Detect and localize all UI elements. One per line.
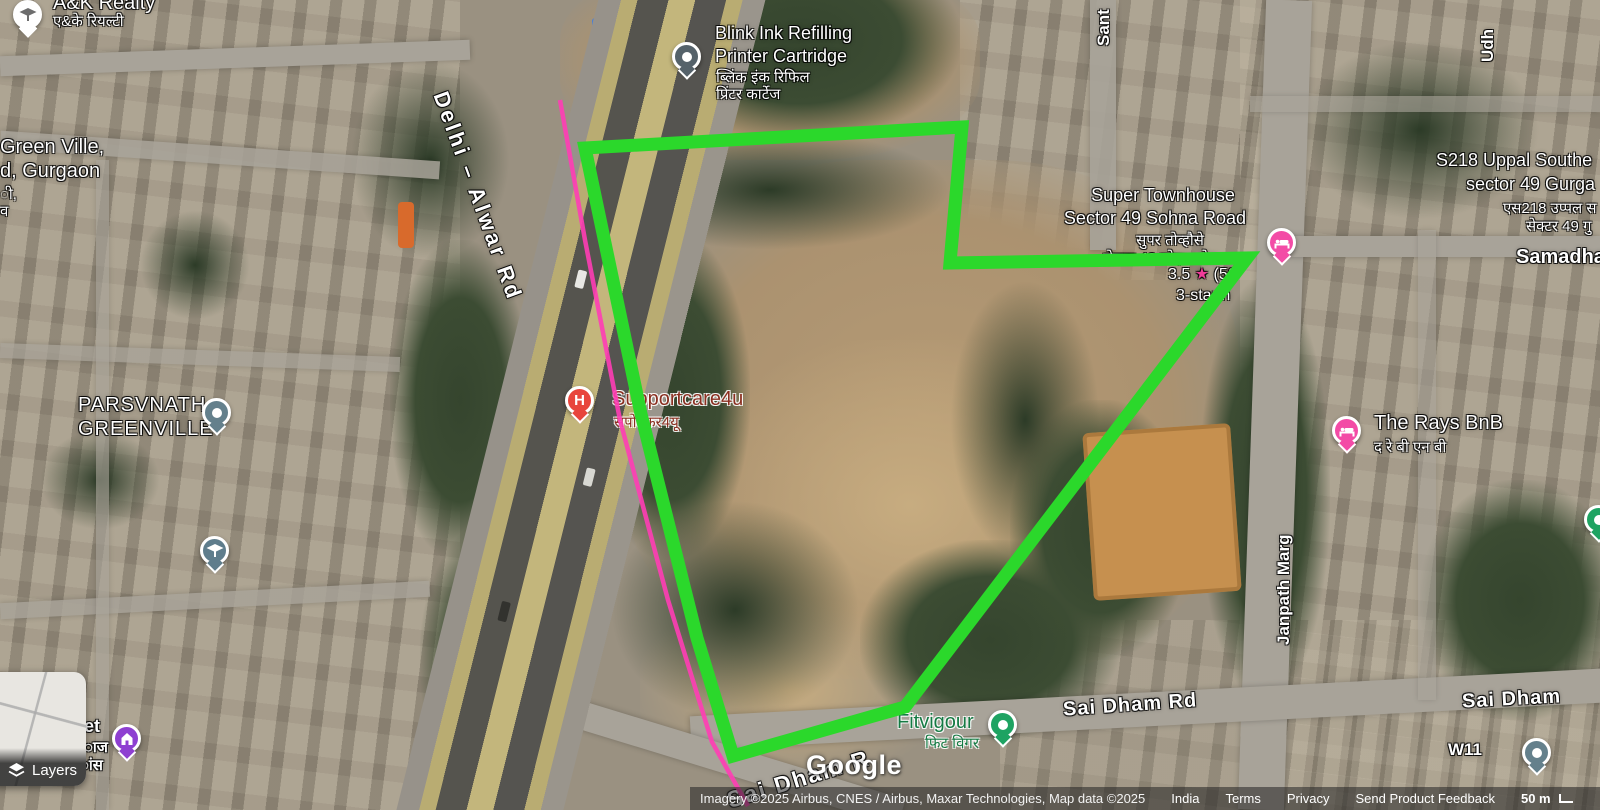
terrain-patch: [610, 500, 860, 720]
hospital-h-glyph: H: [574, 392, 585, 409]
super-townhouse-lodging-pin[interactable]: [1267, 228, 1296, 257]
poi-label-green-ville-frag2: व: [0, 201, 8, 221]
vehicle: [497, 601, 511, 623]
rating-reviews: (56: [1214, 266, 1237, 283]
poi-label-parsvnath-2[interactable]: GREENVILLE: [78, 418, 214, 441]
poi-label-green-ville[interactable]: Green Ville,: [0, 136, 104, 159]
poi-label-uppal-hindi[interactable]: एस218 उप्पल स: [1503, 198, 1596, 218]
poi-label-uppal-hindi2[interactable]: सेक्टर 49 गु: [1526, 216, 1591, 236]
pin-dot: [998, 720, 1008, 730]
poi-label-blink-ink-hindi2[interactable]: प्रिंटर कार्टेज: [716, 84, 780, 104]
street: [1250, 96, 1600, 112]
supportcare-hospital-pin[interactable]: H: [565, 386, 594, 415]
road-label-w11: W11: [1448, 740, 1482, 760]
google-logo[interactable]: Google: [806, 750, 902, 781]
blink-ink-pin[interactable]: [672, 42, 701, 71]
rating-value: 3.5: [1168, 266, 1190, 283]
poi-rating-super-townhouse[interactable]: 3.5 ★ (56: [1168, 264, 1237, 284]
road-label-udh: Udh: [1478, 29, 1498, 62]
poi-label-fitvigour[interactable]: Fitvigour: [897, 711, 974, 734]
poi-label-parsvnath[interactable]: PARSVNATH: [78, 394, 206, 417]
poi-label-uppal[interactable]: S218 Uppal Southe: [1436, 150, 1592, 171]
graduation-cap-icon: [19, 8, 36, 22]
layers-label: Layers: [32, 762, 77, 779]
pin-dot: [1532, 748, 1542, 758]
footer-feedback-link[interactable]: Send Product Feedback: [1355, 791, 1494, 806]
rays-bnb-lodging-pin[interactable]: [1332, 416, 1361, 445]
street: [96, 160, 109, 810]
road-label-janpath-marg: Janpath Marg: [1274, 534, 1294, 645]
pin-dot: [212, 408, 222, 418]
street: [1418, 230, 1436, 700]
w11-pin[interactable]: [1522, 738, 1551, 767]
poi-label-supportcare-hindi[interactable]: सपोर्टकर4यू: [614, 412, 679, 432]
poi-label-blink-ink[interactable]: Blink Ink Refilling: [715, 23, 852, 44]
poi-label-green-ville-2[interactable]: d, Gurgaon: [0, 160, 100, 183]
map-canvas[interactable]: A&K Realty ए&के रियल्टी Green Ville, d, …: [0, 0, 1600, 810]
rating-star-icon: ★: [1195, 266, 1209, 283]
poi-label-banquet-frag2[interactable]: ाज: [84, 737, 108, 757]
poi-label-uppal-2[interactable]: sector 49 Gurga: [1466, 174, 1595, 195]
fitvigour-pin[interactable]: [988, 710, 1017, 739]
vehicle: [583, 467, 596, 487]
map-footer-bar: Imagery ©2025 Airbus, CNES / Airbus, Max…: [690, 787, 1600, 810]
ak-realty-school-pin[interactable]: [13, 0, 42, 29]
pin-dot: [682, 52, 692, 62]
graduation-cap-icon: [206, 544, 223, 558]
imagery-attribution: Imagery ©2025 Airbus, CNES / Airbus, Max…: [700, 791, 1145, 806]
bed-icon: [1274, 237, 1289, 248]
footer-region: India: [1171, 791, 1199, 806]
layers-icon: [8, 762, 25, 779]
terrain-patch: [140, 210, 250, 320]
scale-label[interactable]: 50 m: [1521, 791, 1551, 806]
scale-bar: [1559, 794, 1573, 803]
poi-label-supportcare[interactable]: Supportcare4u: [612, 388, 743, 411]
vehicle: [574, 269, 587, 289]
poi-label-super-townhouse-hindi[interactable]: सुपर तोव्हौसे: [1080, 230, 1260, 250]
road-label-sant: Sant: [1094, 9, 1114, 46]
poi-label-super-townhouse[interactable]: Super Townhouse: [1058, 185, 1268, 206]
pin-dot: [1594, 515, 1600, 525]
orange-roof: [398, 202, 414, 248]
footer-privacy-link[interactable]: Privacy: [1287, 791, 1330, 806]
bed-icon: [1339, 425, 1354, 436]
layers-button[interactable]: Layers: [0, 672, 86, 786]
parsvnath-pin[interactable]: [202, 398, 231, 427]
poi-label-rays-bnb[interactable]: The Rays BnB: [1374, 412, 1503, 435]
banquet-pin[interactable]: [112, 724, 141, 753]
poi-label-fitvigour-hindi[interactable]: फिट विगर: [925, 733, 979, 753]
school-pin[interactable]: [200, 536, 229, 565]
layers-button-strip: Layers: [0, 748, 86, 786]
footer-terms-link[interactable]: Terms: [1225, 791, 1260, 806]
dirt-field: [1082, 423, 1241, 601]
poi-star-class: 3-star h: [1176, 287, 1230, 305]
locality-label-samadhan: Samadha: [1516, 246, 1600, 269]
poi-label-super-townhouse-2[interactable]: Sector 49 Sohna Road: [1040, 208, 1270, 229]
banquet-hall-icon: [120, 733, 133, 745]
poi-label-ak-realty-hindi[interactable]: ए&के रियल्टी: [53, 11, 124, 31]
poi-label-blink-ink-2[interactable]: Printer Cartridge: [715, 46, 847, 67]
poi-label-rays-bnb-hindi[interactable]: द रे बी एन बी: [1374, 437, 1446, 457]
poi-label-banquet-frag[interactable]: et: [84, 716, 100, 737]
